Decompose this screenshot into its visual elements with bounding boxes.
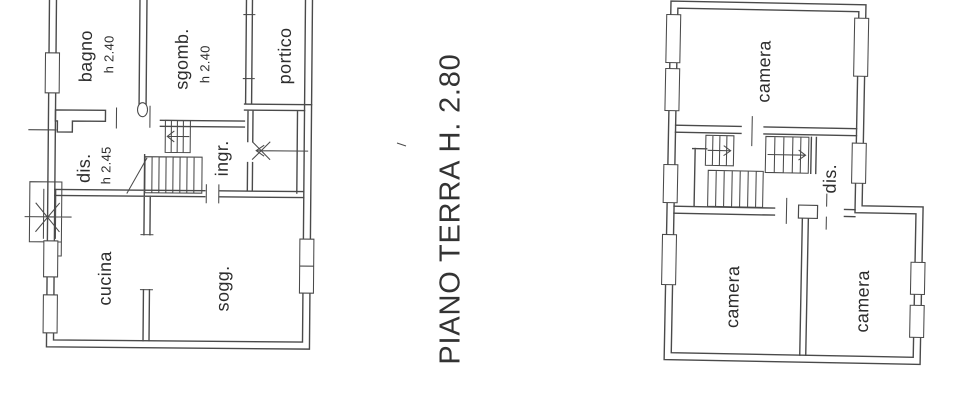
window: [666, 15, 681, 63]
room-label-cucina: cucina: [95, 250, 115, 305]
room-label-bagno: bagno: [76, 30, 96, 82]
room-label-disimpegno: dis.: [74, 153, 94, 183]
room-height-disimpegno: h 2.45: [98, 146, 113, 184]
window: [854, 18, 869, 76]
floor-plan-drawing: bagno h 2.40 sgomb. h 2.40 portico dis. …: [0, 0, 960, 415]
window: [852, 143, 867, 183]
staircase-ground-floor: [127, 120, 203, 194]
right-plan-interior-walls: [671, 125, 856, 356]
window: [662, 234, 677, 284]
room-label-portico: portico: [275, 27, 295, 84]
window: [910, 305, 925, 337]
window: [910, 262, 925, 294]
floor-title-block: PIANO TERRA H. 2.80: [397, 53, 467, 364]
room-height-sgombero: h 2.40: [197, 45, 212, 83]
room-label-camera-nord: camera: [753, 39, 774, 102]
stair-direction-arrow: [167, 131, 189, 142]
right-floor-plan: camera dis. camera camera: [660, 1, 930, 364]
stray-scan-mark: [397, 143, 406, 146]
room-label-camera-sud-ovest: camera: [722, 265, 743, 328]
window: [665, 68, 680, 110]
room-height-bagno: h 2.40: [101, 35, 116, 73]
left-floor-plan: bagno h 2.40 sgomb. h 2.40 portico dis. …: [23, 0, 316, 349]
room-label-sgombero: sgomb.: [171, 28, 192, 90]
room-label-camera-sud-est: camera: [852, 269, 873, 332]
wall-end-cap: [137, 103, 147, 117]
room-label-soggiorno: sogg.: [213, 265, 233, 311]
flue-fixture: [798, 205, 817, 218]
window: [43, 295, 57, 333]
room-label-disimpegno: dis.: [820, 164, 841, 194]
window: [45, 53, 59, 93]
stair-direction-arrow: [767, 149, 805, 160]
window: [663, 164, 678, 202]
room-label-ingresso: ingr.: [212, 140, 232, 176]
floor-title: PIANO TERRA H. 2.80: [435, 53, 467, 364]
staircase-upper-floor: [705, 135, 809, 208]
right-plan-outer-wall: [664, 1, 927, 364]
floor-plan-sheet: bagno h 2.40 sgomb. h 2.40 portico dis. …: [0, 0, 960, 415]
entry-arrow: [256, 145, 308, 156]
window: [44, 241, 58, 277]
